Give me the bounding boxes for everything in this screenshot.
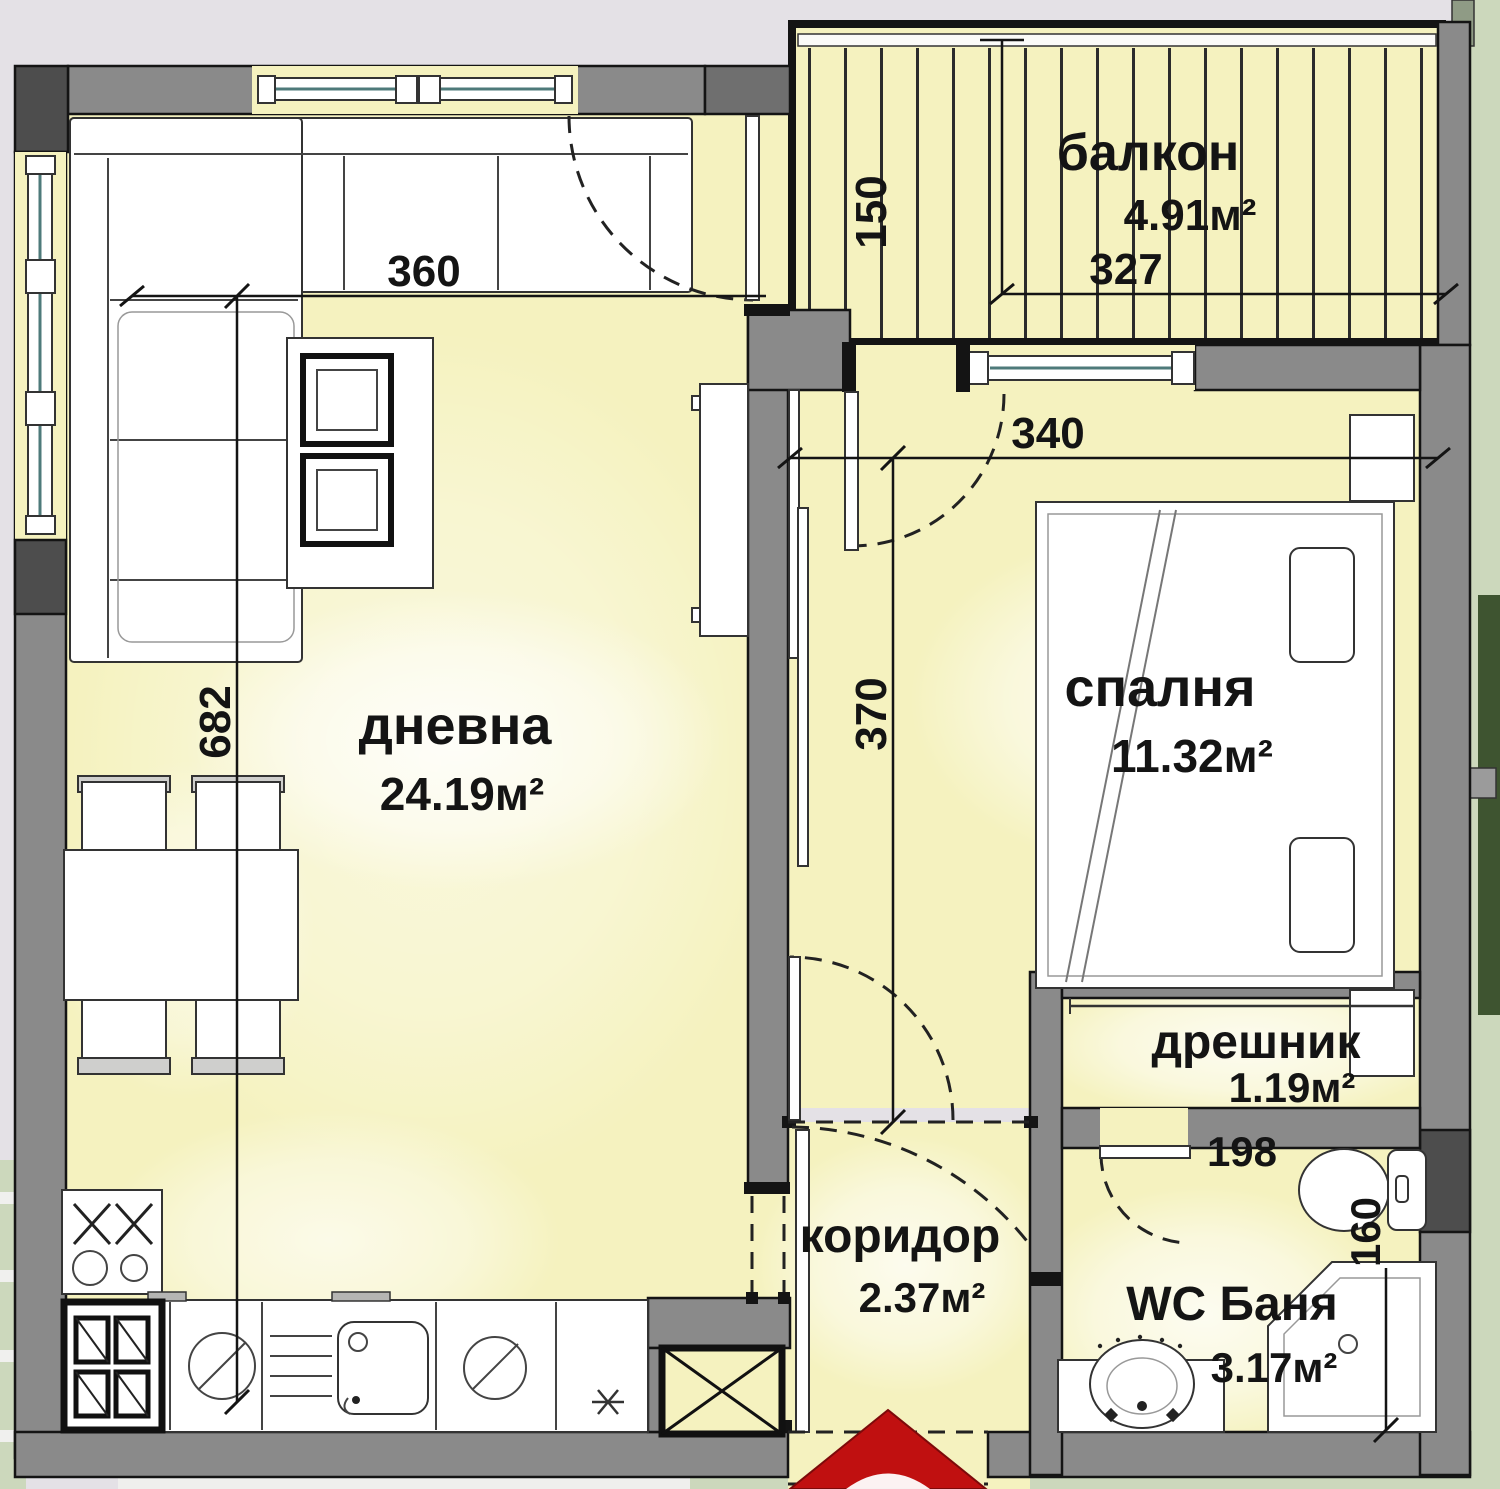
door-leaf-bath xyxy=(1100,1146,1190,1158)
sink-drain xyxy=(352,1396,360,1404)
wall-cap xyxy=(746,1292,758,1304)
basin-drain xyxy=(1137,1401,1147,1411)
chair-backrest xyxy=(78,1058,170,1074)
counter-tab xyxy=(332,1292,390,1301)
window-cap xyxy=(1172,352,1194,384)
dim-label-living-height: 682 xyxy=(191,685,240,758)
window-top xyxy=(252,66,578,114)
dim-label-bedroom-width: 340 xyxy=(1011,409,1084,458)
door-leaf-balcony xyxy=(845,392,858,550)
wall-interior-corner xyxy=(748,310,850,390)
window-cap xyxy=(258,76,275,103)
dim-label-balcony-width: 327 xyxy=(1089,245,1162,294)
cabinet-tab xyxy=(692,396,700,410)
neighbor-detail xyxy=(1470,768,1496,798)
dim-label-balcony-depth: 150 xyxy=(847,175,896,248)
wall-corner-topleft xyxy=(15,66,68,152)
pillow xyxy=(1290,838,1354,952)
wall-cap xyxy=(842,342,856,392)
room-label-bedroom-name: спалня xyxy=(1064,658,1255,718)
room-label-living-name: дневна xyxy=(359,696,553,756)
room-label-corridor-name: коридор xyxy=(800,1210,1001,1263)
wall-cap xyxy=(1030,1272,1062,1286)
window-bedroom xyxy=(965,345,1195,390)
window-left xyxy=(15,152,66,540)
cabinet-tab xyxy=(692,608,700,622)
cabinet-body xyxy=(700,384,748,636)
room-label-closet-area: 1.19м² xyxy=(1229,1064,1356,1111)
room-label-balcony-area: 4.91м² xyxy=(1124,191,1257,240)
wall-interior-vertical xyxy=(748,310,788,1190)
chair xyxy=(82,782,166,850)
dim-label-bath-height: 160 xyxy=(1342,1197,1389,1267)
balcony-railing xyxy=(798,34,1436,46)
tv-unit xyxy=(287,338,433,588)
balcony-door-opening xyxy=(850,345,965,390)
dim-label-bath-width: 198 xyxy=(1207,1128,1277,1175)
window-cap xyxy=(26,156,55,174)
neighbor-dark-green xyxy=(1478,595,1500,1015)
window-mullion xyxy=(419,76,440,103)
room-label-bedroom-area: 11.32м² xyxy=(1111,730,1273,782)
room-label-bath-name: WC Баня xyxy=(1126,1278,1338,1331)
floorplan-svg: дневна 24.19м² спалня 11.32м² балкон 4.9… xyxy=(0,0,1500,1489)
dining-table xyxy=(64,850,298,1000)
room-label-corridor-area: 2.37м² xyxy=(859,1274,986,1321)
room-label-bath-area: 3.17м² xyxy=(1211,1344,1338,1391)
bath-door-opening xyxy=(1100,1108,1188,1148)
room-label-living-area: 24.19м² xyxy=(380,768,544,820)
wall-left-dark-block xyxy=(15,540,66,614)
pillow xyxy=(1290,548,1354,662)
window-mullion xyxy=(396,76,417,103)
wall-cap xyxy=(956,342,970,392)
room-label-balcony-name: балкон xyxy=(1057,124,1240,182)
dim-label-living-width: 360 xyxy=(387,247,460,296)
wardrobe-panel xyxy=(798,508,808,866)
door-leaf-living xyxy=(746,116,759,300)
dim-label-bedroom-height: 370 xyxy=(847,677,896,750)
window-cap xyxy=(555,76,572,103)
wall-cap xyxy=(778,1292,790,1304)
room-label-closet-name: дрешник xyxy=(1151,1016,1361,1069)
wall-cap xyxy=(744,304,790,316)
wall-under-balcony xyxy=(1195,345,1420,390)
floorplan-canvas: дневна 24.19м² спалня 11.32м² балкон 4.9… xyxy=(0,0,1500,1489)
window-mullion xyxy=(26,260,55,293)
window-mullion xyxy=(26,392,55,425)
shaft-duct xyxy=(662,1348,782,1434)
door-leaf-entrance xyxy=(796,1130,809,1432)
wall-right-dark-block xyxy=(1420,1130,1470,1232)
wall-top-dark-segment xyxy=(705,66,790,114)
door-leaf-bedroom xyxy=(789,957,800,1120)
wall-cap xyxy=(744,1182,790,1194)
wall-bottom-left xyxy=(15,1432,788,1477)
wall-kitchen-stub xyxy=(648,1298,790,1348)
toilet-button xyxy=(1396,1176,1408,1202)
window-cap xyxy=(26,516,55,534)
